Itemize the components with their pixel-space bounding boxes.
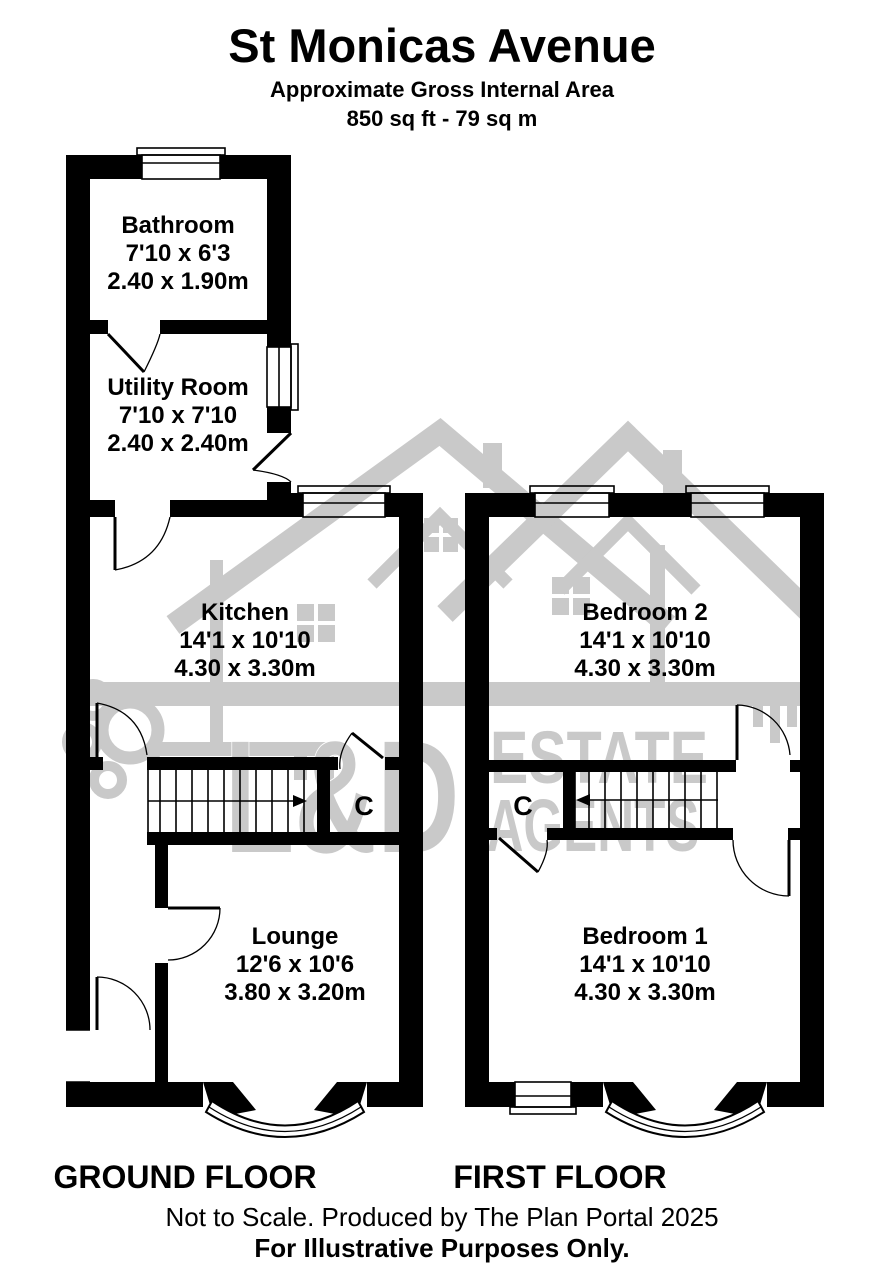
door-swing [733, 840, 789, 896]
room-label-bedroom1: Bedroom 1 14'1 x 10'10 4.30 x 3.30m [574, 923, 715, 1006]
header: St Monicas Avenue Approximate Gross Inte… [228, 19, 655, 131]
ground-floor-label: GROUND FLOOR [53, 1159, 316, 1195]
room-dim-metric: 3.80 x 3.20m [224, 979, 365, 1006]
window [510, 1082, 576, 1114]
room-dim-metric: 4.30 x 3.30m [574, 655, 715, 682]
window [298, 486, 390, 517]
window [530, 486, 614, 517]
room-dim-imperial: 12'6 x 10'6 [236, 951, 354, 978]
room-name: Bedroom 2 [582, 599, 707, 626]
room-dim-metric: 2.40 x 1.90m [107, 268, 248, 295]
room-label-bedroom2: Bedroom 2 14'1 x 10'10 4.30 x 3.30m [574, 599, 715, 682]
door-swing [253, 433, 291, 482]
door-swing [737, 705, 790, 760]
window [137, 148, 225, 179]
room-name: Kitchen [201, 599, 289, 626]
floorplan-canvas: L&D ESTATE AGENTS St Monicas Avenue Appr… [0, 0, 884, 1280]
watermark-chimney-icon [663, 450, 682, 493]
page-title: St Monicas Avenue [228, 19, 655, 72]
room-dim-metric: 4.30 x 3.30m [174, 655, 315, 682]
floor-plan-ground: Bathroom 7'10 x 6'3 2.40 x 1.90m Utility… [66, 148, 423, 1137]
watermark-band [85, 682, 812, 706]
room-name: Bathroom [121, 212, 234, 239]
room-name: Lounge [252, 923, 339, 950]
room-dim-metric: 2.40 x 2.40m [107, 430, 248, 457]
room-dim-imperial: 14'1 x 10'10 [579, 951, 711, 978]
footer: GROUND FLOOR FIRST FLOOR Not to Scale. P… [53, 1159, 718, 1263]
cupboard-label: C [513, 791, 533, 821]
room-label-bathroom: Bathroom 7'10 x 6'3 2.40 x 1.90m [107, 212, 248, 295]
door-swing [168, 908, 220, 960]
floorplan-page: L&D ESTATE AGENTS St Monicas Avenue Appr… [0, 0, 884, 1280]
room-dim-imperial: 14'1 x 10'10 [579, 627, 711, 654]
room-dim-metric: 4.30 x 3.30m [574, 979, 715, 1006]
page-subtitle: Approximate Gross Internal Area [270, 77, 615, 102]
page-area: 850 sq ft - 79 sq m [347, 106, 538, 131]
room-dim-imperial: 14'1 x 10'10 [179, 627, 311, 654]
watermark-chimney-pots-icon [750, 688, 798, 743]
door-swing [115, 517, 170, 570]
room-dim-imperial: 7'10 x 7'10 [119, 402, 237, 429]
disclaimer-line1: Not to Scale. Produced by The Plan Porta… [165, 1202, 718, 1232]
watermark-brand-text: L&D [225, 707, 460, 886]
disclaimer-line2: For Illustrative Purposes Only. [254, 1233, 629, 1263]
first-floor-label: FIRST FLOOR [453, 1159, 666, 1195]
room-dim-imperial: 7'10 x 6'3 [126, 240, 231, 267]
door-swing [108, 334, 160, 372]
room-name: Bedroom 1 [582, 923, 707, 950]
cupboard-label: C [354, 791, 374, 821]
window [267, 344, 298, 410]
watermark-chimney-icon [483, 443, 502, 488]
room-name: Utility Room [107, 374, 248, 401]
room-label-utility: Utility Room 7'10 x 7'10 2.40 x 2.40m [107, 374, 248, 457]
window [686, 486, 769, 517]
room-label-lounge: Lounge 12'6 x 10'6 3.80 x 3.20m [224, 923, 365, 1006]
